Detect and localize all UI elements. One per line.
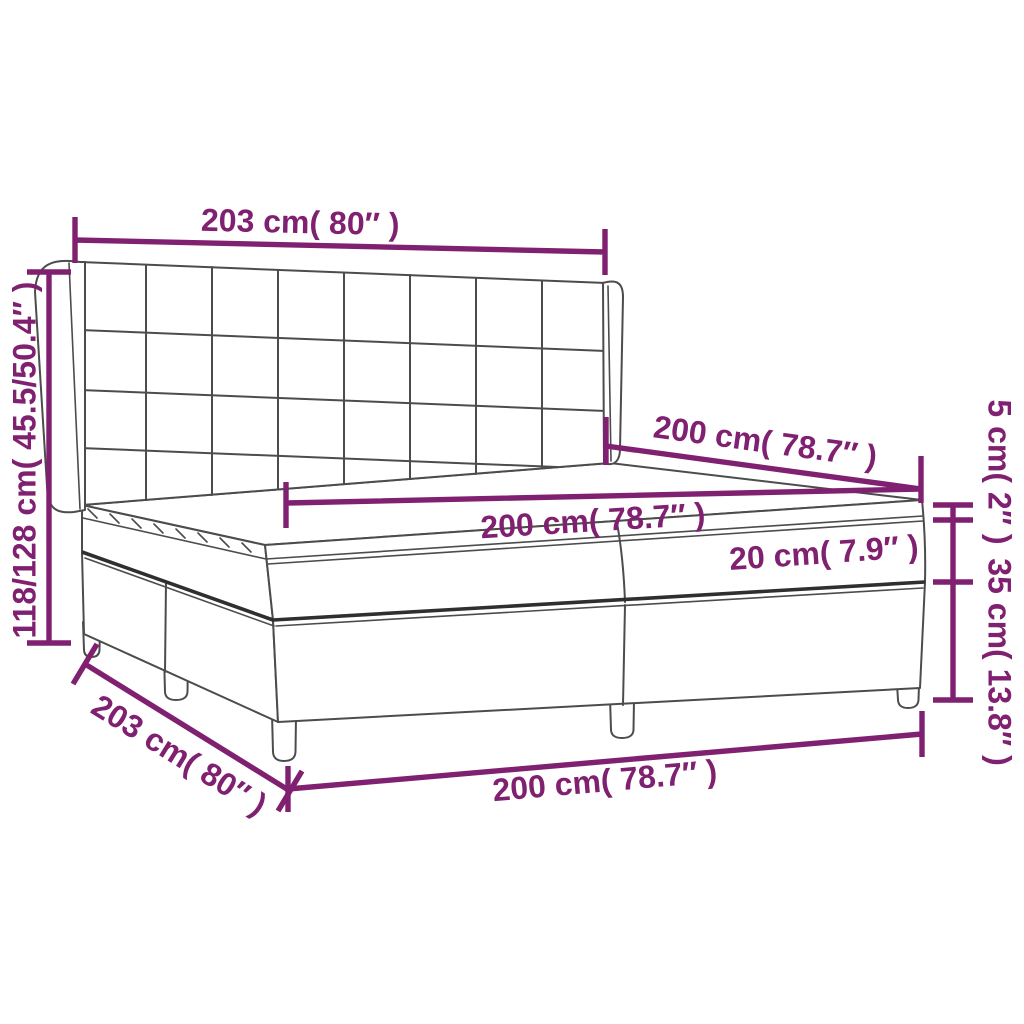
bed-dimension-diagram: 203 cm( 80″ ) 118/128 cm( 45.5/50.4″ ) 2… xyxy=(0,0,1024,1024)
box-seam-left xyxy=(165,582,166,672)
dim-label-topper-height: 5 cm( 2″ ) xyxy=(982,399,1018,544)
dim-line xyxy=(933,505,973,700)
dim-base-width: 200 cm( 78.7″ ) xyxy=(288,711,922,812)
dim-label-base-height: 35 cm( 13.8″ ) xyxy=(982,558,1018,765)
headboard-left-wing xyxy=(35,261,85,512)
dimension-diagram-canvas: 203 cm( 80″ ) 118/128 cm( 45.5/50.4″ ) 2… xyxy=(0,0,1024,1024)
dim-right-height-stack: 5 cm( 2″ ) 35 cm( 13.8″ ) xyxy=(933,399,1018,765)
dim-label-headboard-width: 203 cm( 80″ ) xyxy=(201,202,400,242)
dim-label-mattress-length: 200 cm( 78.7″ ) xyxy=(651,408,879,474)
dim-label-total-height: 118/128 cm( 45.5/50.4″ ) xyxy=(6,282,42,639)
